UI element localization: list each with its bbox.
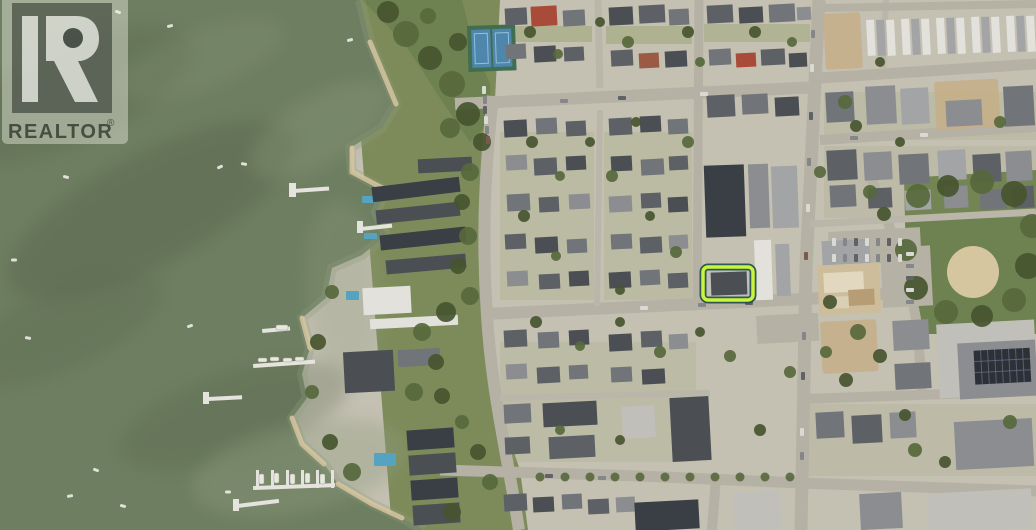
realtor-brand-text: REALTOR — [8, 121, 113, 143]
realtor-r-icon — [63, 28, 83, 48]
swimming-pool — [374, 453, 396, 466]
solar-roof-building — [936, 319, 1036, 400]
swimming-pool — [364, 233, 377, 239]
realtor-r-icon — [22, 16, 38, 102]
registered-trademark-symbol: ® — [107, 118, 115, 129]
listing-aerial-map: REALTOR ® — [0, 0, 1036, 530]
satellite-map-image: REALTOR ® — [0, 0, 1036, 530]
realtor-watermark-logo: REALTOR ® — [2, 0, 128, 144]
baseball-diamond — [947, 246, 999, 298]
swimming-pool — [346, 291, 359, 300]
